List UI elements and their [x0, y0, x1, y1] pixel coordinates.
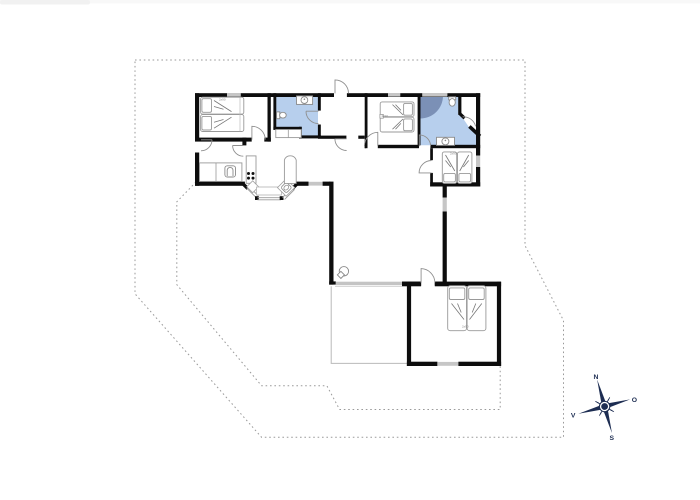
svg-text:2x90: 2x90 — [382, 114, 389, 118]
svg-text:V: V — [571, 413, 576, 420]
svg-text:N: N — [593, 374, 598, 381]
svg-text:2x90: 2x90 — [462, 325, 469, 329]
svg-text:2x90: 2x90 — [450, 152, 457, 156]
svg-text:O: O — [632, 397, 637, 404]
svg-text:2x90: 2x90 — [219, 98, 226, 102]
svg-text:S: S — [610, 435, 615, 442]
